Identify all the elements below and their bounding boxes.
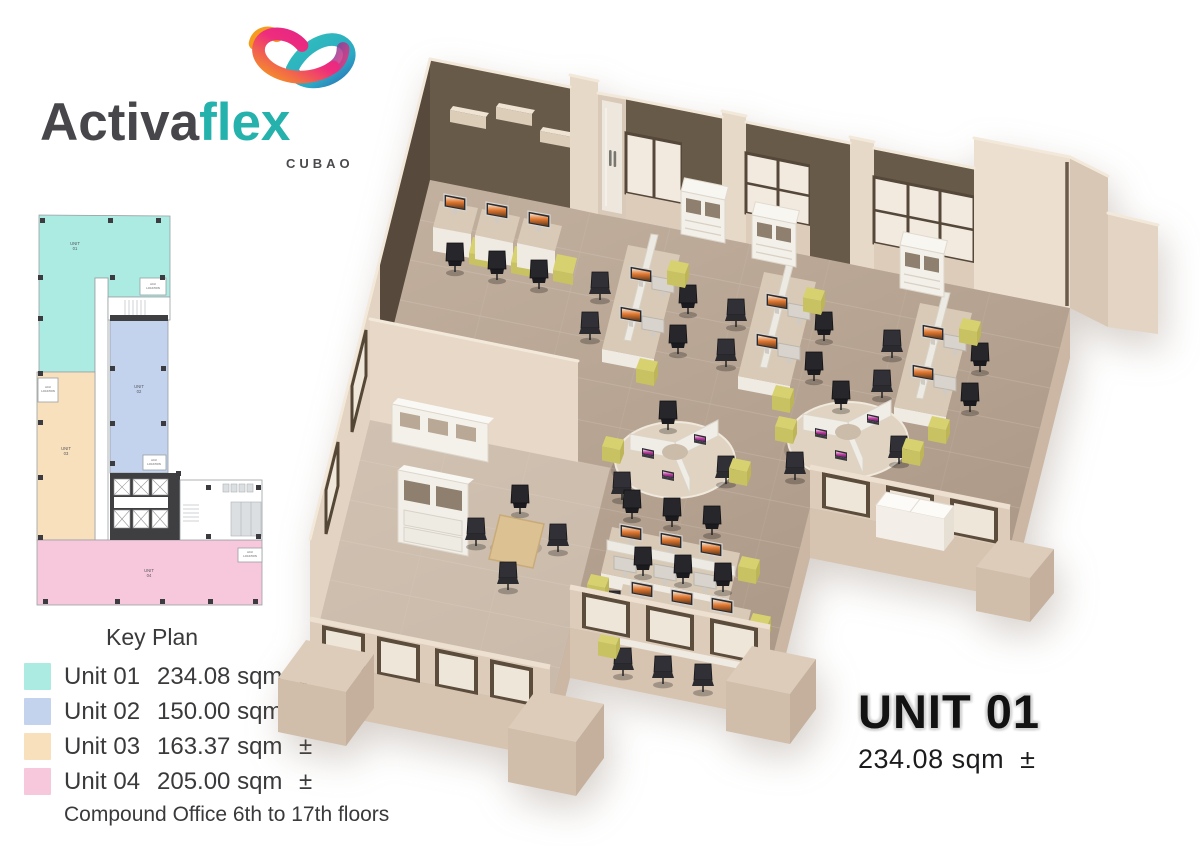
svg-text:LOCATION: LOCATION bbox=[146, 286, 160, 290]
wall-pillar bbox=[570, 76, 598, 214]
unit-03-label: Unit 03 bbox=[64, 733, 157, 761]
dark-wall-panel bbox=[810, 136, 850, 264]
unit-area: 234.08 sqm± bbox=[858, 744, 1040, 775]
svg-text:ACU: ACU bbox=[151, 458, 157, 462]
keyplan-elevator-core bbox=[110, 473, 180, 540]
wall-cabinet bbox=[752, 202, 799, 267]
keyplan-wall bbox=[110, 315, 168, 321]
unit-name: UNIT 01 bbox=[858, 684, 1040, 739]
unit-area-tolerance: ± bbox=[1020, 744, 1035, 774]
unit-03-swatch bbox=[24, 733, 51, 760]
window-bay-1 bbox=[626, 99, 682, 230]
unit-01-swatch bbox=[24, 663, 51, 690]
svg-text:LOCATION: LOCATION bbox=[147, 462, 161, 466]
keyplan-unit-02-region bbox=[110, 320, 168, 473]
storage-shelves bbox=[398, 465, 474, 556]
flyer-page: Activaflex CUBAO bbox=[0, 0, 1200, 846]
wall-cabinet bbox=[900, 232, 947, 297]
svg-text:ACU: ACU bbox=[247, 550, 253, 554]
brand-wordmark: Activaflex bbox=[40, 92, 290, 153]
glass-door bbox=[598, 94, 626, 219]
wall-pillar bbox=[722, 112, 746, 243]
svg-text:LOCATION: LOCATION bbox=[243, 554, 257, 558]
unit-04-label: Unit 04 bbox=[64, 768, 157, 796]
svg-text:03: 03 bbox=[64, 451, 69, 456]
office-3d-render bbox=[270, 0, 1200, 810]
key-plan-diagram: UNIT 01 UNIT 02 UNIT 03 UNIT 04 ACU LOCA… bbox=[35, 212, 265, 612]
svg-text:LOCATION: LOCATION bbox=[41, 389, 55, 393]
wall-cabinet bbox=[681, 178, 728, 243]
unit-02-swatch bbox=[24, 698, 51, 725]
svg-text:04: 04 bbox=[147, 573, 152, 578]
unit-area-value: 234.08 sqm bbox=[858, 744, 1004, 774]
corner-block bbox=[278, 640, 374, 746]
svg-text:ACU: ACU bbox=[150, 282, 156, 286]
svg-text:01: 01 bbox=[73, 246, 78, 251]
brand-primary: Activa bbox=[40, 93, 199, 152]
svg-text:02: 02 bbox=[137, 389, 142, 394]
keyplan-restrooms bbox=[180, 480, 262, 540]
keyplan-corridor bbox=[95, 278, 108, 540]
wall-pillar bbox=[850, 138, 874, 269]
unit-detail-title: UNIT 01 234.08 sqm± bbox=[858, 684, 1040, 775]
svg-text:ACU: ACU bbox=[45, 385, 51, 389]
unit-04-swatch bbox=[24, 768, 51, 795]
unit-02-label: Unit 02 bbox=[64, 698, 157, 726]
unit-01-label: Unit 01 bbox=[64, 663, 157, 691]
